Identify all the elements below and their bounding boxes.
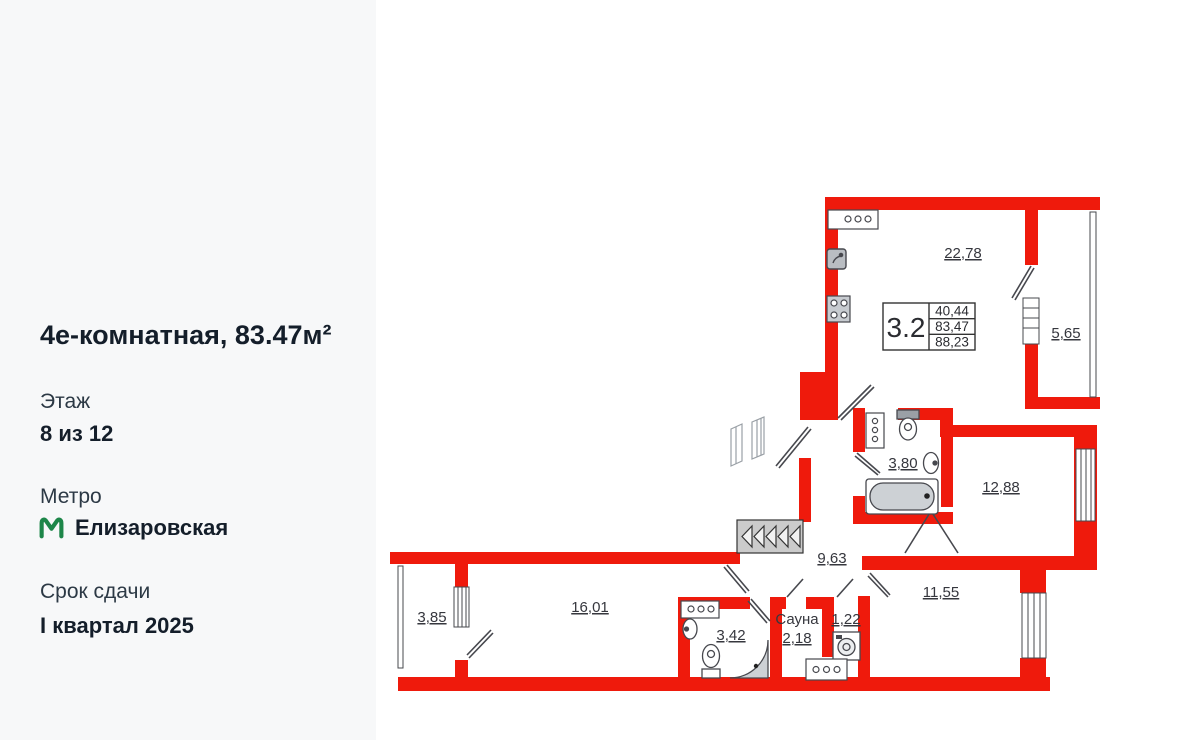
unit-spec-table: 3.2 40,44 83,47 88,23	[883, 303, 975, 350]
room-label-bedroom-bottom-right: 11,55	[923, 584, 959, 601]
washer-icon	[833, 632, 860, 660]
unit-area-3: 88,23	[935, 335, 969, 350]
walls	[390, 197, 1100, 691]
room-label-closet: 1,22	[831, 611, 860, 628]
room-label-bedroom-right: 12,88	[982, 479, 1020, 496]
sink-icon	[924, 453, 939, 474]
wardrobe-icon	[737, 520, 803, 553]
toilet-icon	[702, 645, 720, 679]
room-label-balcony-top: 5,65	[1051, 325, 1080, 342]
bathtub-icon	[866, 479, 938, 514]
room-label-sauna-area: 2,18	[782, 630, 811, 647]
room-label-sauna-name: Сауна	[775, 611, 819, 628]
balcony-glazing	[398, 566, 403, 668]
sink-icon	[683, 619, 697, 639]
room-label-bath-top: 3,80	[888, 455, 917, 472]
room-label-hall: 9,63	[817, 550, 846, 567]
unit-number: 3.2	[887, 312, 926, 343]
bath-counter-icon	[866, 413, 884, 448]
window	[1023, 298, 1039, 344]
balcony-glazing	[1090, 212, 1096, 397]
room-labels: 22,78 5,65 3,80 12,88 9,63 11,55 16,01 3…	[417, 245, 1080, 647]
entry-door-icon	[731, 417, 764, 466]
unit-area-1: 40,44	[935, 304, 969, 319]
room-label-living: 22,78	[944, 245, 982, 262]
kitchen-sink-icon	[827, 249, 846, 269]
bath2-counter-icon	[681, 601, 719, 618]
floor-plan: 3.2 40,44 83,47 88,23 22,78 5,65 3,80 12…	[0, 0, 1200, 740]
room-label-bedroom-bottom-left: 16,01	[571, 599, 609, 616]
shower-icon	[730, 640, 768, 678]
shaft-counter-icon	[806, 659, 847, 680]
stove-icon	[827, 296, 850, 322]
kitchen-counter-icon	[828, 210, 878, 229]
unit-area-2: 83,47	[935, 319, 969, 334]
room-label-bath-bottom: 3,42	[716, 627, 745, 644]
toilet-icon	[897, 410, 919, 440]
room-label-balcony-bottom: 3,85	[417, 609, 446, 626]
